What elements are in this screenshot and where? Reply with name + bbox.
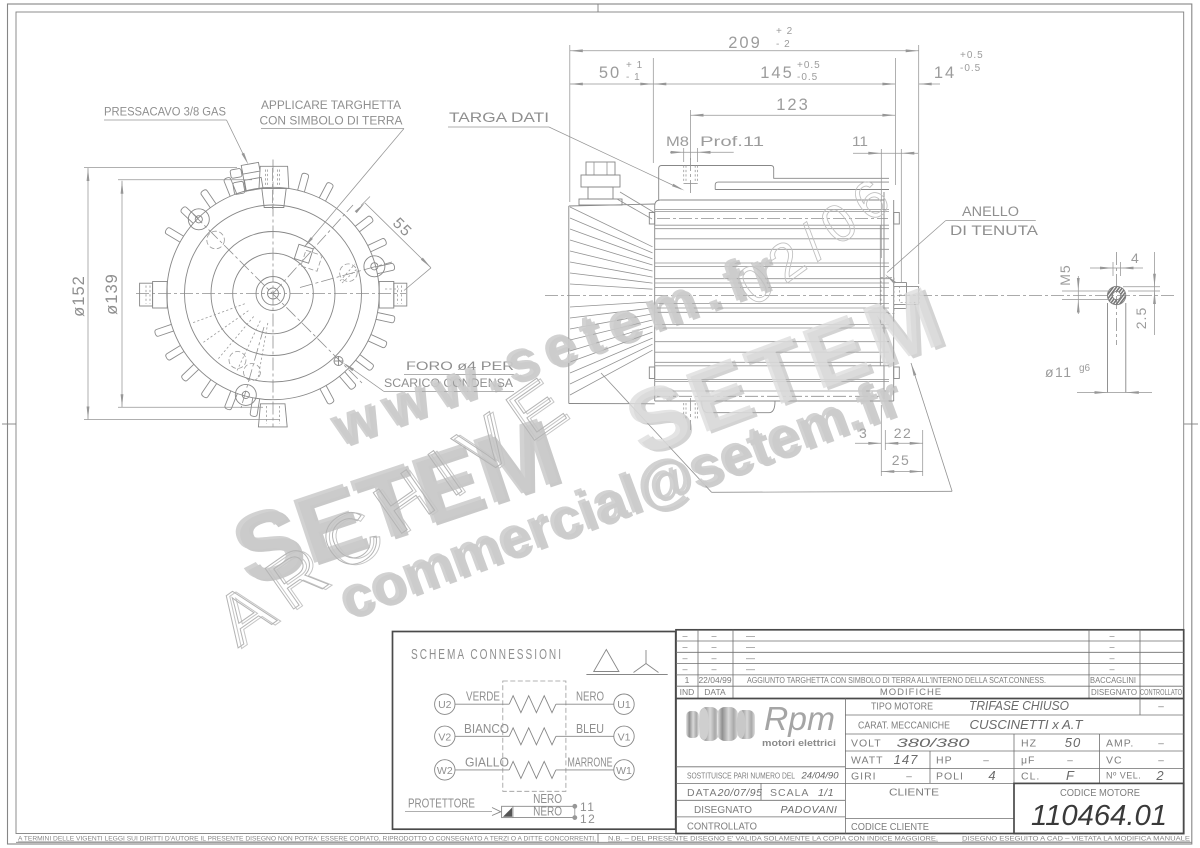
svg-text:–: – [983,756,989,767]
svg-text:11: 11 [852,134,868,149]
svg-text:CLIENTE: CLIENTE [889,787,939,799]
svg-text:–: – [682,630,687,640]
svg-text:PRESSACAVO 3/8 GAS: PRESSACAVO 3/8 GAS [104,105,226,119]
svg-text:20/07/95: 20/07/95 [717,787,763,799]
svg-text:μF: μF [1021,755,1035,767]
svg-text:ø152: ø152 [70,275,88,317]
svg-text:50: 50 [599,64,621,82]
svg-text:F: F [1066,768,1075,783]
svg-text:SCALA: SCALA [770,787,809,799]
svg-text:BLEU: BLEU [576,722,604,736]
svg-text:AGGIUNTO TARGHETTA CON SIMBOLO: AGGIUNTO TARGHETTA CON SIMBOLO DI TERRA … [747,675,1046,685]
svg-text:U1: U1 [617,699,631,711]
svg-text:1: 1 [685,675,690,685]
svg-text:–: – [1067,756,1073,767]
svg-text:- 1: - 1 [626,72,641,83]
svg-text:—: — [746,642,755,652]
svg-text:MARRONE: MARRONE [568,755,613,769]
svg-text:–: – [1109,664,1114,674]
svg-text:DISEGNO ESEGUITO A CAD – VIETA: DISEGNO ESEGUITO A CAD – VIETATA LA MODI… [962,836,1190,843]
svg-text:2.5: 2.5 [1133,307,1149,329]
svg-text:CL.: CL. [1021,771,1040,783]
svg-text:VERDE: VERDE [466,690,500,704]
svg-text:+ 1: + 1 [626,60,643,71]
svg-text:—: — [746,630,755,640]
svg-text:–: – [906,772,912,783]
svg-text:–: – [682,653,687,663]
svg-text:22/04/99: 22/04/99 [698,675,731,685]
svg-text:1/1: 1/1 [818,787,834,799]
svg-text:—: — [746,653,755,663]
svg-text:110464.01: 110464.01 [1031,800,1167,832]
svg-text:25: 25 [892,452,911,468]
svg-text:M8: M8 [666,134,689,149]
svg-text:TARGA DATI: TARGA DATI [449,110,549,125]
svg-text:ANELLO: ANELLO [962,204,1019,219]
svg-text:+0.5: +0.5 [960,50,984,61]
svg-text:380/380: 380/380 [897,736,971,750]
svg-text:GIALLO: GIALLO [465,755,509,769]
svg-text:POLI: POLI [936,771,964,783]
svg-text:PADOVANI: PADOVANI [781,804,838,816]
svg-text:ø139: ø139 [103,273,121,315]
svg-text:PROTETTORE: PROTETTORE [408,796,475,811]
svg-text:-0.5: -0.5 [960,63,981,74]
svg-text:SCHEMA CONNESSIONI: SCHEMA CONNESSIONI [411,646,563,663]
svg-text:SOSTITUISCE PARI NUMERO DEL: SOSTITUISCE PARI NUMERO DEL [687,772,795,781]
svg-text:GIRI: GIRI [851,771,877,783]
svg-text:M5: M5 [1057,264,1073,285]
svg-text:–: – [1158,739,1164,750]
svg-text:TRIFASE CHIUSO: TRIFASE CHIUSO [969,698,1069,713]
svg-text:A TERMINI DELLE VIGENTI LEGGI: A TERMINI DELLE VIGENTI LEGGI SUI DIRITT… [18,836,596,843]
svg-text:ø11: ø11 [1045,364,1073,380]
svg-text:+ 2: + 2 [776,26,793,37]
svg-text:–: – [682,642,687,652]
svg-text:DI TENUTA: DI TENUTA [950,223,1038,238]
svg-text:V1: V1 [618,731,631,743]
svg-text:CUSCINETTI x A.T: CUSCINETTI x A.T [970,717,1084,732]
svg-text:IND: IND [680,687,695,697]
svg-text:24/04/90: 24/04/90 [801,771,840,782]
svg-text:4: 4 [1131,250,1140,266]
svg-text:U2: U2 [438,699,452,711]
svg-text:CODICE CLIENTE: CODICE CLIENTE [851,822,929,833]
svg-text:DISEGNATO: DISEGNATO [1091,688,1137,697]
svg-text:-0.5: -0.5 [797,72,818,83]
svg-text:N.B. – DEL PRESENTE DISEGNO E': N.B. – DEL PRESENTE DISEGNO E' VALIDA SO… [608,836,938,843]
svg-text:–: – [1109,630,1114,640]
svg-text:–: – [1109,642,1114,652]
svg-text:–: – [711,664,716,674]
svg-text:Nº VEL.: Nº VEL. [1106,771,1141,781]
svg-text:VC: VC [1106,755,1123,767]
svg-text:Rpm: Rpm [764,700,835,737]
svg-text:—: — [746,664,755,674]
svg-text:VOLT: VOLT [851,738,882,750]
svg-text:W1: W1 [616,765,632,777]
svg-text:BIANCO: BIANCO [464,722,509,736]
svg-text:147: 147 [894,752,919,767]
svg-text:WATT: WATT [851,755,884,767]
svg-text:DATA: DATA [704,687,726,697]
svg-text:TIPO MOTORE: TIPO MOTORE [871,702,933,713]
svg-text:V2: V2 [438,731,451,743]
svg-text:2: 2 [1155,768,1164,783]
svg-text:AMP.: AMP. [1106,738,1134,750]
svg-text:209: 209 [728,34,762,52]
svg-text:DISEGNATO: DISEGNATO [694,805,752,816]
svg-text:APPLICARE TARGHETTA: APPLICARE TARGHETTA [261,98,402,112]
svg-text:CON SIMBOLO DI TERRA: CON SIMBOLO DI TERRA [260,114,404,128]
svg-text:W2: W2 [437,765,453,777]
svg-text:HP: HP [936,755,953,767]
svg-text:DATA: DATA [687,787,717,799]
svg-text:–: – [682,664,687,674]
svg-text:50: 50 [1065,735,1081,750]
svg-text:NERO: NERO [533,805,562,819]
svg-text:CONTROLLATO: CONTROLLATO [1140,688,1182,697]
svg-text:MODIFICHE: MODIFICHE [880,687,942,698]
svg-text:BACCAGLINI: BACCAGLINI [1090,675,1136,685]
svg-text:Prof.11: Prof.11 [700,134,764,149]
svg-text:14: 14 [934,64,956,82]
svg-text:NERO: NERO [576,690,604,704]
svg-text:–: – [711,653,716,663]
svg-text:HZ: HZ [1021,738,1037,750]
svg-text:+0.5: +0.5 [797,60,821,71]
svg-text:145: 145 [760,64,794,82]
svg-text:–: – [1158,702,1164,713]
svg-text:CARAT. MECCANICHE: CARAT. MECCANICHE [858,721,950,732]
svg-text:123: 123 [776,96,810,114]
svg-text:4: 4 [988,768,995,783]
svg-text:–: – [711,642,716,652]
svg-text:–: – [1158,756,1164,767]
svg-text:CONTROLLATO: CONTROLLATO [687,821,757,832]
svg-text:motori elettrici: motori elettrici [762,738,836,749]
svg-text:g6: g6 [1079,363,1091,374]
svg-text:–: – [1109,653,1114,663]
svg-text:–: – [711,630,716,640]
svg-text:12: 12 [580,812,596,826]
svg-text:CODICE MOTORE: CODICE MOTORE [1060,788,1140,799]
svg-text:- 2: - 2 [776,39,791,50]
